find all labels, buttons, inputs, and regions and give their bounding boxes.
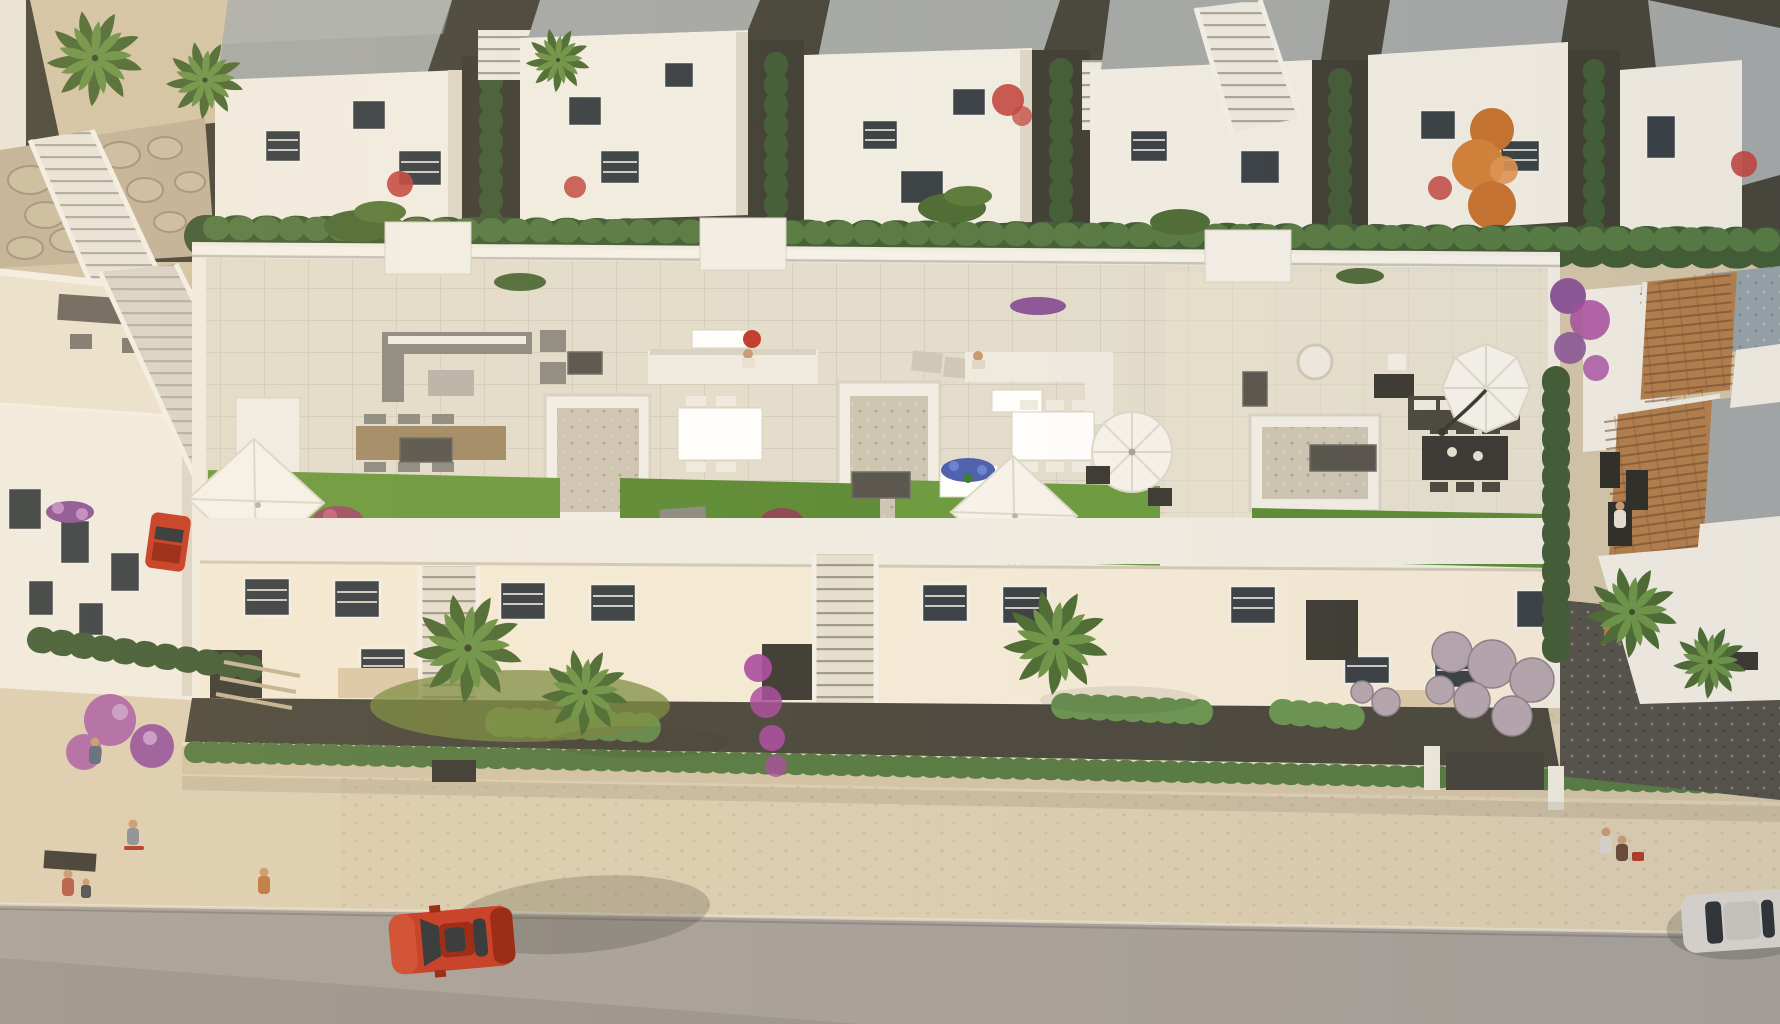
aerial-render	[0, 0, 1780, 1024]
light-wash	[0, 0, 1780, 1024]
scene-canvas	[0, 0, 1780, 1024]
